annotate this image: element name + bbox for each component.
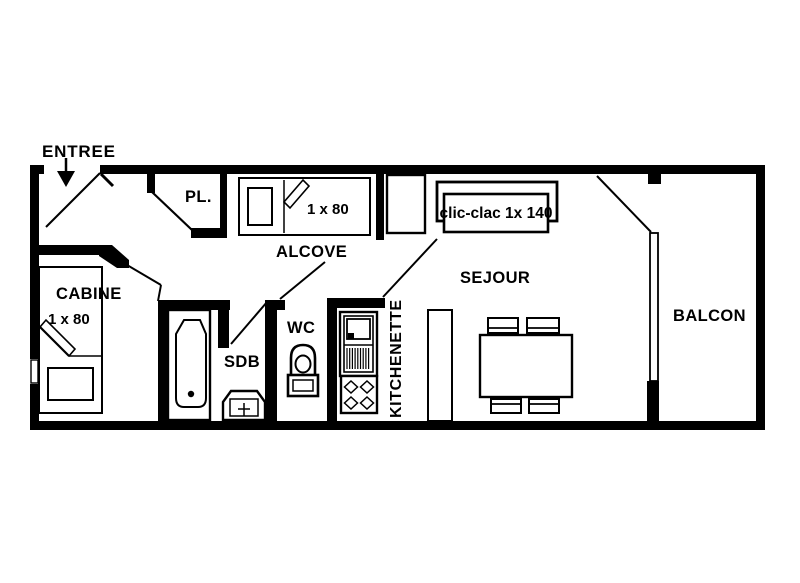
sejour-door-leaf <box>383 239 437 297</box>
label-alcove-bed: 1 x 80 <box>307 201 349 218</box>
entry-door-leaf <box>46 173 100 227</box>
label-kitchenette: KITCHENETTE <box>388 299 405 418</box>
clic-clac-sofa: clic-clac 1x 140 <box>437 182 557 232</box>
entry-jamb-tail <box>101 174 113 186</box>
sdb-door-leaf <box>231 302 267 344</box>
kitchenette-left-wall <box>327 298 337 421</box>
floor-plan-canvas: clic-clac 1x 140 <box>0 0 800 583</box>
wc-top-stub <box>265 300 285 310</box>
label-placard: PL. <box>185 188 212 206</box>
sdb-door-jamb <box>218 300 229 348</box>
kitchen-drainer-stripes <box>347 348 369 369</box>
chair-top-right <box>527 318 559 333</box>
chair-top-left <box>488 318 518 333</box>
label-wc: WC <box>287 319 315 337</box>
kitchen-unit <box>340 312 377 413</box>
kitchen-sink-drain <box>348 333 354 339</box>
sdb-sink <box>223 391 265 420</box>
floor-plan-drawing: clic-clac 1x 140 <box>0 0 800 583</box>
placard-right-wall <box>220 174 227 238</box>
balcony-window <box>650 233 658 381</box>
label-entree: ENTREE <box>42 142 116 161</box>
chair-bottom-left <box>491 399 521 413</box>
sofa-label: clic-clac 1x 140 <box>440 205 553 222</box>
corridor-wall-angled <box>99 245 129 268</box>
label-alcove: ALCOVE <box>276 243 347 261</box>
sdb-wc-divider-wall <box>265 300 277 421</box>
sdb-left-wall <box>158 300 167 421</box>
kitchen-stove <box>341 376 377 413</box>
entrance-arrow-icon <box>57 158 75 187</box>
cabine-door-leaf-2 <box>158 285 161 301</box>
wall-right <box>756 165 765 430</box>
alcove-bed-pillow <box>248 188 272 225</box>
wall-bottom <box>30 421 765 430</box>
toilet <box>288 345 318 396</box>
bathtub <box>168 310 210 420</box>
balcony-door-stub <box>648 174 661 184</box>
alcove-closet <box>387 175 425 233</box>
wc-door-leaf <box>280 262 325 299</box>
wall-left <box>30 165 39 430</box>
kitchenette-top-wall <box>327 298 385 308</box>
balcony-divider-bottom-wall <box>647 381 659 421</box>
bathtub-drain <box>188 391 194 397</box>
left-wall-window <box>31 360 38 383</box>
kitchen-counter <box>428 310 452 421</box>
label-balcon: BALCON <box>673 307 746 325</box>
corridor-wall <box>38 245 108 255</box>
toilet-seat <box>296 356 311 373</box>
label-cabine-bed: 1 x 80 <box>48 311 90 328</box>
dining-set <box>480 318 572 413</box>
wall-top <box>100 165 765 174</box>
label-sdb: SDB <box>224 353 260 371</box>
balcony-door-leaf <box>597 176 651 232</box>
label-cabine: CABINE <box>56 285 122 303</box>
alcove-bed <box>239 178 370 235</box>
dining-table <box>480 335 572 397</box>
placard-left-wall <box>147 174 155 193</box>
cabine-door-leaf-1 <box>127 265 161 285</box>
alcove-right-wall <box>376 172 384 240</box>
cabine-bed-pillow <box>48 368 93 400</box>
toilet-tank-inner <box>293 380 313 391</box>
chair-bottom-right <box>529 399 559 413</box>
label-sejour: SEJOUR <box>460 269 530 287</box>
